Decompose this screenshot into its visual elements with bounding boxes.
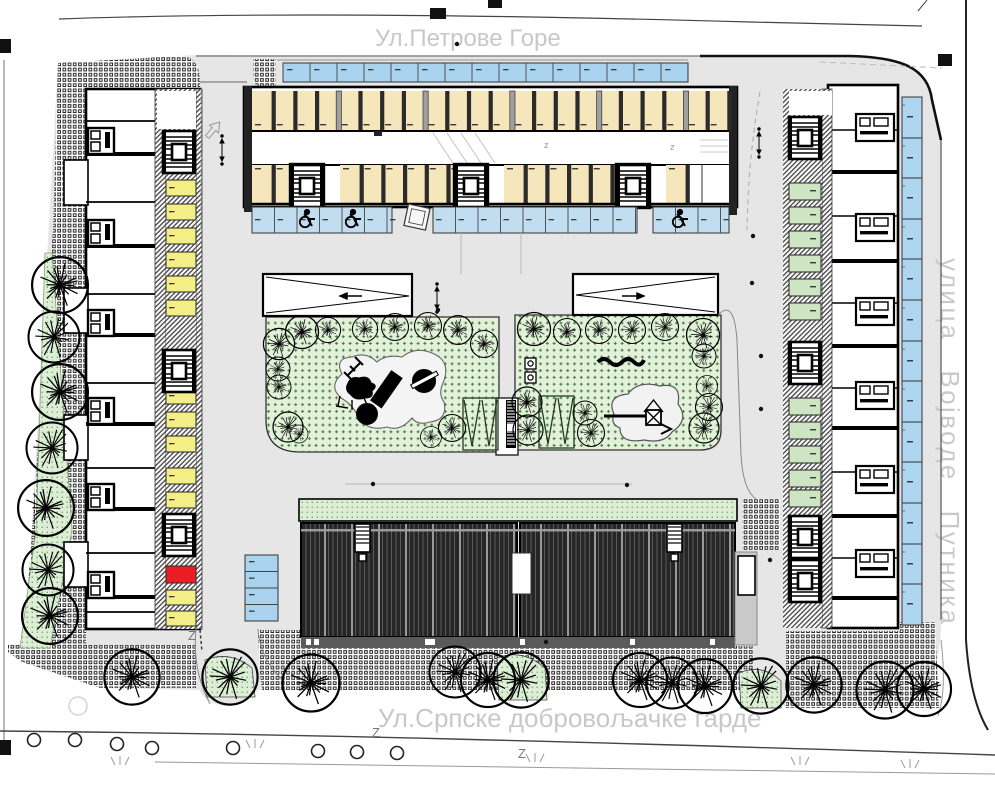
svg-text:Z: Z: [372, 725, 380, 740]
svg-text:Ул.Српске добровољачке гарде: Ул.Српске добровољачке гарде: [378, 703, 761, 733]
svg-text:z: z: [544, 140, 549, 150]
svg-text:Ул.Петрове Горе: Ул.Петрове Горе: [375, 25, 561, 52]
svg-text:Z: Z: [188, 628, 196, 643]
svg-text:улица Војводе Путника: улица Војводе Путника: [935, 258, 965, 626]
svg-text:z: z: [670, 142, 675, 152]
svg-text:Z: Z: [518, 746, 526, 761]
